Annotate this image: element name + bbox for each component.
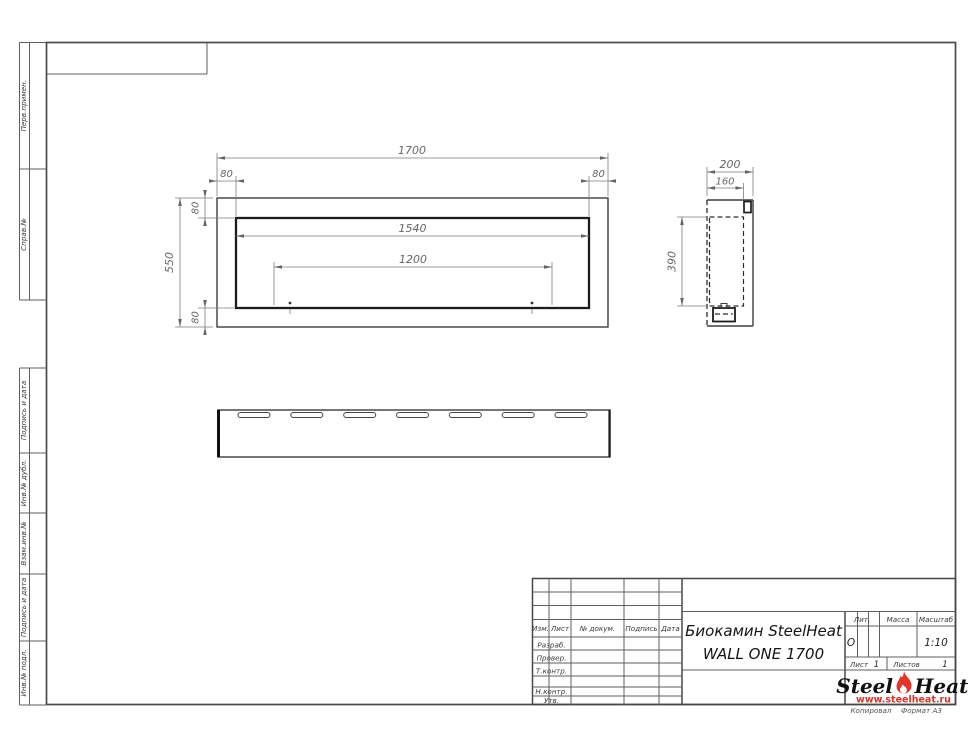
- doc-title-line2: WALL ONE 1700: [703, 645, 824, 663]
- frame: [47, 43, 956, 705]
- svg-text:200: 200: [720, 158, 741, 171]
- dim-side-inner-depth: 160: [707, 177, 744, 201]
- margin-label-podpis-data-2: Подпись и дата: [19, 578, 28, 638]
- margin-label-inv-dubl: Инв.№ дубл.: [19, 460, 28, 507]
- designation-repeat-box: [47, 43, 208, 75]
- row-prover: Провер.: [537, 654, 567, 663]
- copied-note: Копировал: [850, 706, 891, 715]
- svg-text:1200: 1200: [399, 253, 427, 266]
- title-block: Изм. Лист № докум. Подпись Дата Разраб. …: [532, 579, 969, 706]
- row-utv: Утв.: [544, 696, 559, 705]
- dim-front-inset-top: 80: [191, 190, 235, 226]
- doc-title-line1: Биокамин SteelHeat: [685, 622, 843, 640]
- row-nkontr: Н.контр.: [535, 687, 567, 696]
- flame-icon: [897, 671, 912, 694]
- side-view: 200 160 390: [666, 158, 754, 326]
- svg-text:390: 390: [666, 251, 679, 272]
- bottom-view: [218, 410, 610, 457]
- row-tkontr: Т.контр.: [536, 667, 567, 676]
- col-data: Дата: [660, 624, 680, 633]
- svg-text:1700: 1700: [398, 144, 426, 157]
- dim-front-inset-left: 80: [209, 169, 244, 216]
- massa-label: Масса: [887, 615, 910, 624]
- masshtab-value: 1:10: [924, 637, 948, 649]
- list-label: Лист: [849, 660, 869, 669]
- margin-label-inv-podl: Инв.№ подл.: [19, 649, 28, 696]
- dim-front-width: 1700: [217, 144, 608, 196]
- margin-label-vzam-inv: Взам.инв.№: [19, 521, 28, 565]
- gost-drawing-canvas: Перв.примен. Справ.№ Подпись и дата Инв.…: [0, 0, 970, 749]
- col-list: Лист: [550, 624, 570, 633]
- dim-side-opening-height: 390: [666, 217, 708, 306]
- front-view: 1700 80 80 550: [163, 144, 616, 335]
- svg-text:80: 80: [191, 202, 202, 215]
- listov-label: Листов: [892, 660, 920, 669]
- col-doc: № докум.: [579, 624, 615, 633]
- col-podpis: Подпись: [625, 624, 657, 633]
- dim-front-opening-width: 1540: [236, 222, 589, 238]
- lit-value: О: [847, 637, 855, 649]
- drawing-sheet: Перв.примен. Справ.№ Подпись и дата Инв.…: [0, 0, 970, 749]
- dim-front-inset-right: 80: [581, 169, 616, 216]
- margin-columns: Перв.примен. Справ.№ Подпись и дата Инв.…: [19, 43, 47, 706]
- format-note: Формат А3: [901, 706, 942, 715]
- row-razrab: Разраб.: [537, 641, 565, 650]
- svg-text:80: 80: [191, 311, 202, 324]
- svg-text:550: 550: [163, 252, 176, 273]
- svg-text:1540: 1540: [399, 222, 427, 235]
- dim-front-mount-span: 1200: [274, 253, 552, 305]
- vent-slots: [238, 413, 587, 418]
- footer-notes: Копировал Формат А3: [850, 706, 942, 715]
- list-value: 1: [874, 660, 879, 670]
- dim-front-inset-bottom: 80: [191, 300, 235, 335]
- col-izm: Изм.: [532, 624, 549, 633]
- logo-site-url: www.steelheat.ru: [856, 695, 951, 706]
- margin-label-perv-primen: Перв.примен.: [19, 80, 28, 132]
- lit-label: Лит.: [853, 615, 871, 624]
- steelheat-logo: Steel Heat www.steelheat.ru: [836, 671, 969, 706]
- svg-text:160: 160: [715, 177, 734, 188]
- svg-text:80: 80: [220, 169, 233, 180]
- masshtab-label: Масштаб: [919, 615, 954, 624]
- margin-label-sprav-no: Справ.№: [19, 218, 28, 251]
- svg-text:80: 80: [592, 169, 605, 180]
- margin-label-podpis-data-1: Подпись и дата: [19, 381, 28, 441]
- listov-value: 1: [942, 660, 947, 670]
